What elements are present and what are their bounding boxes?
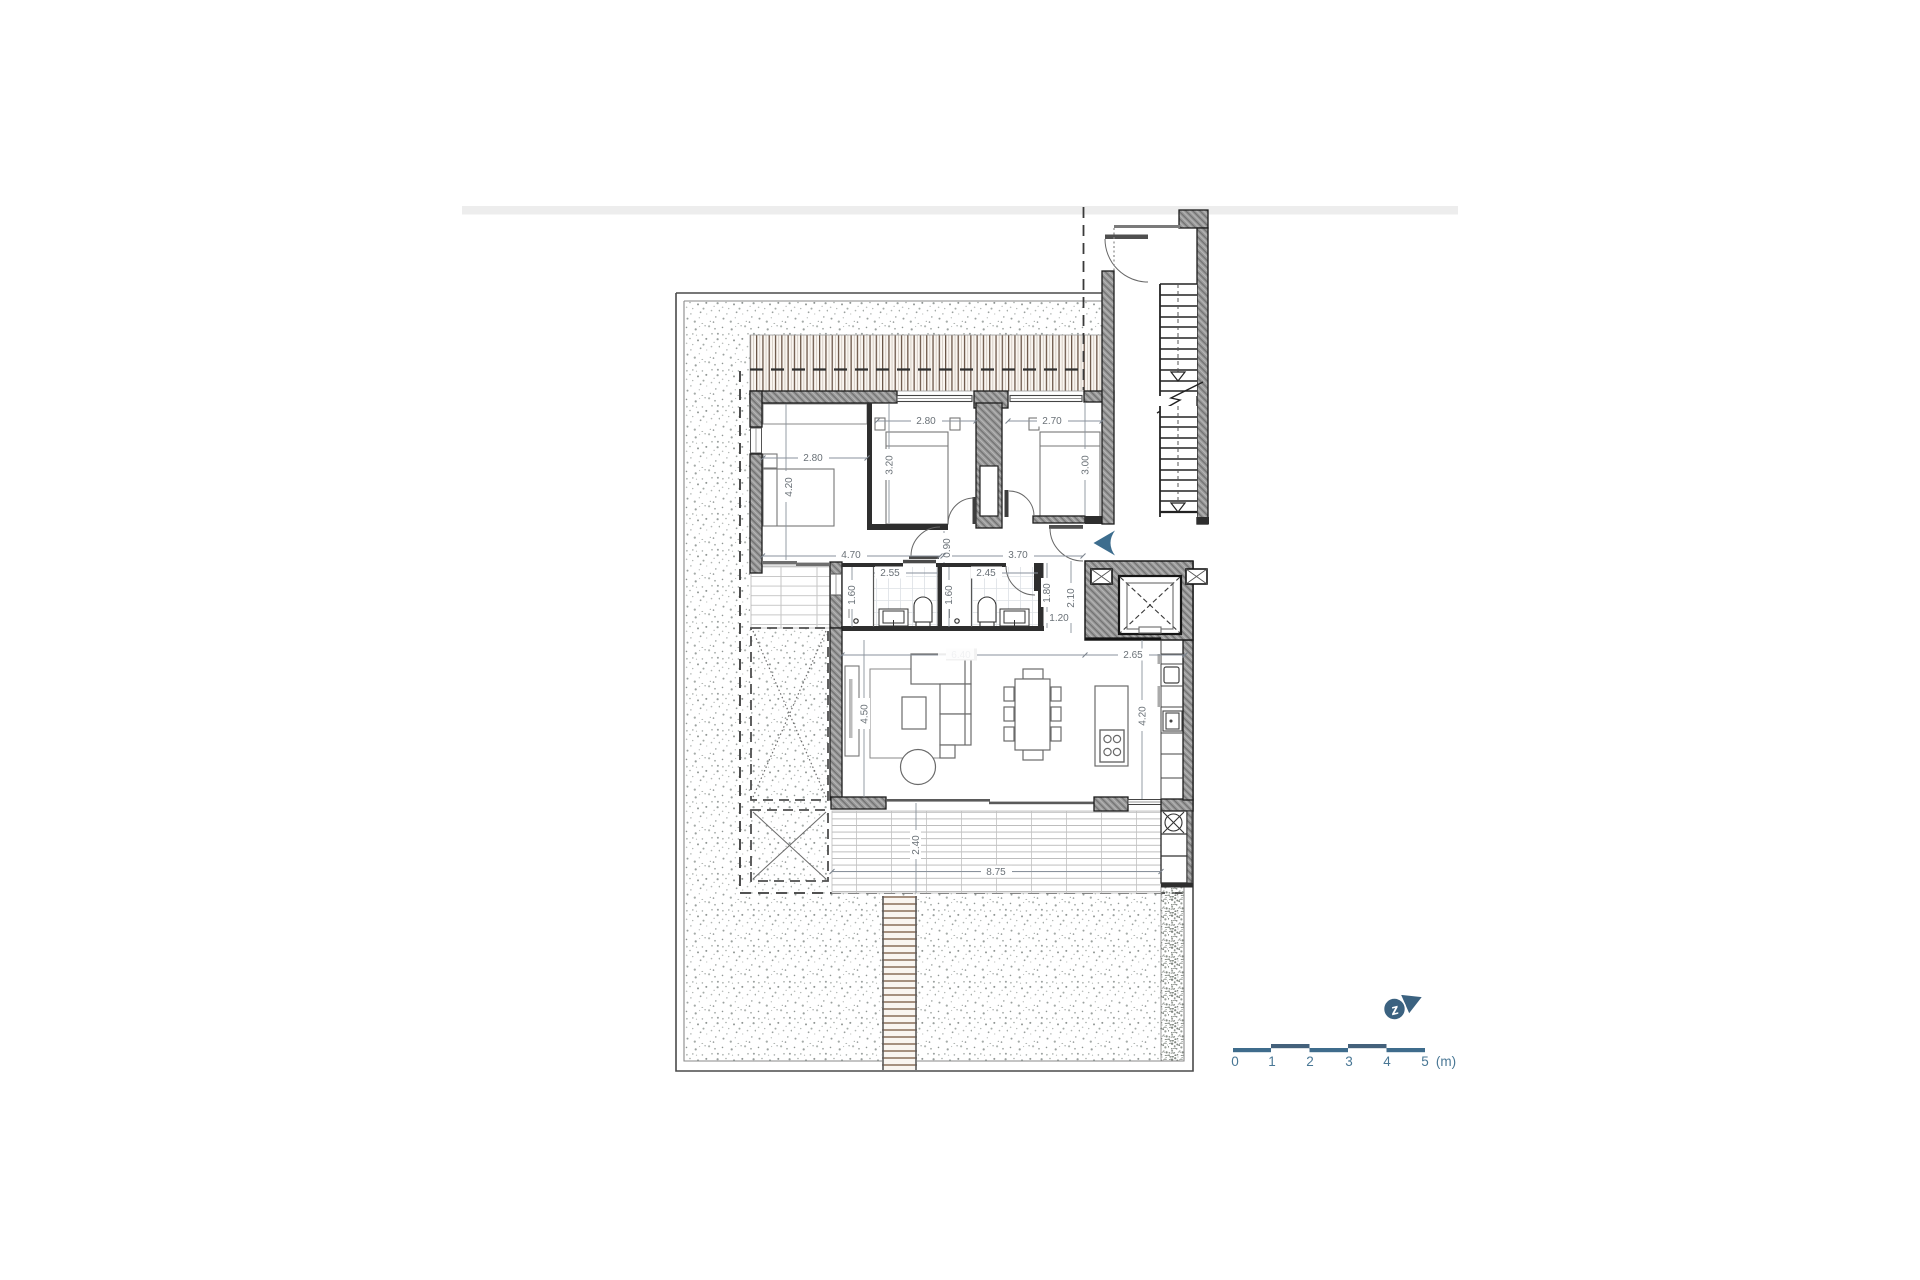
svg-text:1.80: 1.80 — [1042, 583, 1053, 603]
svg-text:2: 2 — [1306, 1054, 1314, 1069]
svg-text:(m): (m) — [1436, 1054, 1456, 1069]
svg-text:4: 4 — [1383, 1054, 1391, 1069]
svg-text:1: 1 — [1268, 1054, 1276, 1069]
svg-text:8.75: 8.75 — [986, 867, 1006, 878]
svg-text:4.20: 4.20 — [1138, 706, 1149, 726]
svg-text:4.70: 4.70 — [841, 550, 861, 561]
svg-text:3.70: 3.70 — [1008, 550, 1028, 561]
svg-text:2.80: 2.80 — [803, 453, 823, 464]
svg-text:3.20: 3.20 — [885, 455, 896, 475]
svg-text:0: 0 — [1231, 1054, 1239, 1069]
svg-text:2.55: 2.55 — [880, 568, 900, 579]
svg-text:2.80: 2.80 — [916, 416, 936, 427]
svg-text:5: 5 — [1421, 1054, 1429, 1069]
svg-text:4.50: 4.50 — [860, 704, 871, 724]
svg-text:1.60: 1.60 — [847, 585, 858, 605]
svg-text:2.10: 2.10 — [1066, 588, 1077, 608]
svg-text:1.20: 1.20 — [1049, 613, 1069, 624]
svg-text:2.45: 2.45 — [976, 568, 996, 579]
svg-text:3: 3 — [1345, 1054, 1353, 1069]
svg-text:2.70: 2.70 — [1042, 416, 1062, 427]
svg-text:2.40: 2.40 — [911, 835, 922, 855]
svg-text:1.60: 1.60 — [944, 585, 955, 605]
svg-text:3.00: 3.00 — [1081, 455, 1092, 475]
svg-text:2.65: 2.65 — [1123, 650, 1143, 661]
svg-text:4.20: 4.20 — [784, 477, 795, 497]
